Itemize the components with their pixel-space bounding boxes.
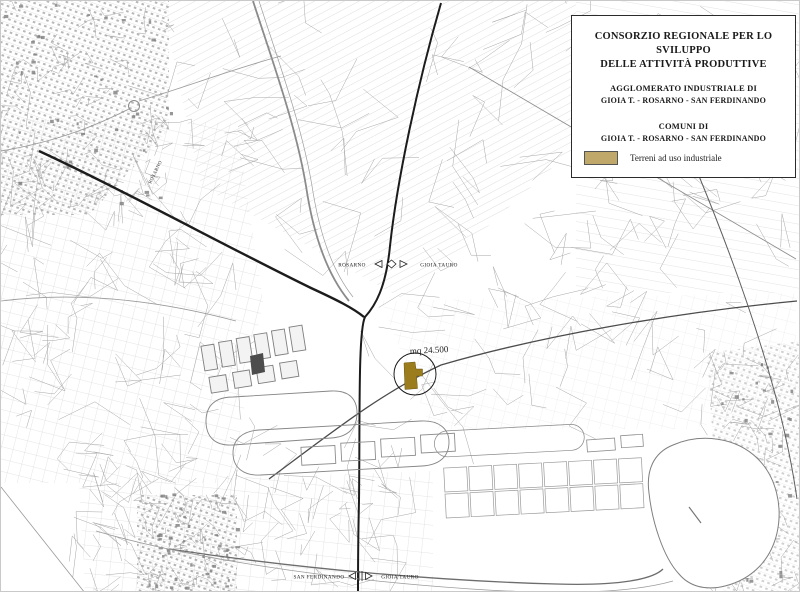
legend-title-line2: DELLE ATTIVITÀ PRODUTTIVE bbox=[572, 58, 795, 72]
port-area bbox=[434, 421, 779, 588]
label-sanferdinando-bottom: SAN FERDINANDO bbox=[294, 575, 345, 581]
legend-swatch bbox=[584, 151, 618, 165]
legend-section1-value: GIOIA T. - ROSARNO - SAN FERDINANDO bbox=[572, 96, 795, 105]
legend-section1-heading: AGGLOMERATO INDUSTRIALE DI bbox=[572, 83, 795, 93]
area-annotation: mq 24.500 bbox=[410, 344, 449, 356]
map-sheet: mq 24.500 ROSARNO GIOIA TAURO SAN FERDIN… bbox=[0, 0, 800, 592]
legend-swatch-label: Terreni ad uso industriale bbox=[630, 153, 722, 163]
label-rosarno-mid: ROSARNO bbox=[338, 263, 366, 269]
label-gioiatauro-mid: GIOIA TAURO bbox=[420, 263, 457, 269]
legend-section2-value: GIOIA T. - ROSARNO - SAN FERDINANDO bbox=[572, 134, 795, 143]
legend-section2-heading: COMUNI DI bbox=[572, 121, 795, 131]
label-gioiatauro-bottom: GIOIA TAURO bbox=[381, 575, 418, 581]
harbor-basin bbox=[648, 438, 779, 588]
legend-box: CONSORZIO REGIONALE PER LO SVILUPPO DELL… bbox=[571, 15, 796, 178]
legend-title-line1: CONSORZIO REGIONALE PER LO SVILUPPO bbox=[572, 30, 795, 58]
mid-direction-marker bbox=[375, 260, 407, 268]
dark-building bbox=[250, 353, 265, 375]
